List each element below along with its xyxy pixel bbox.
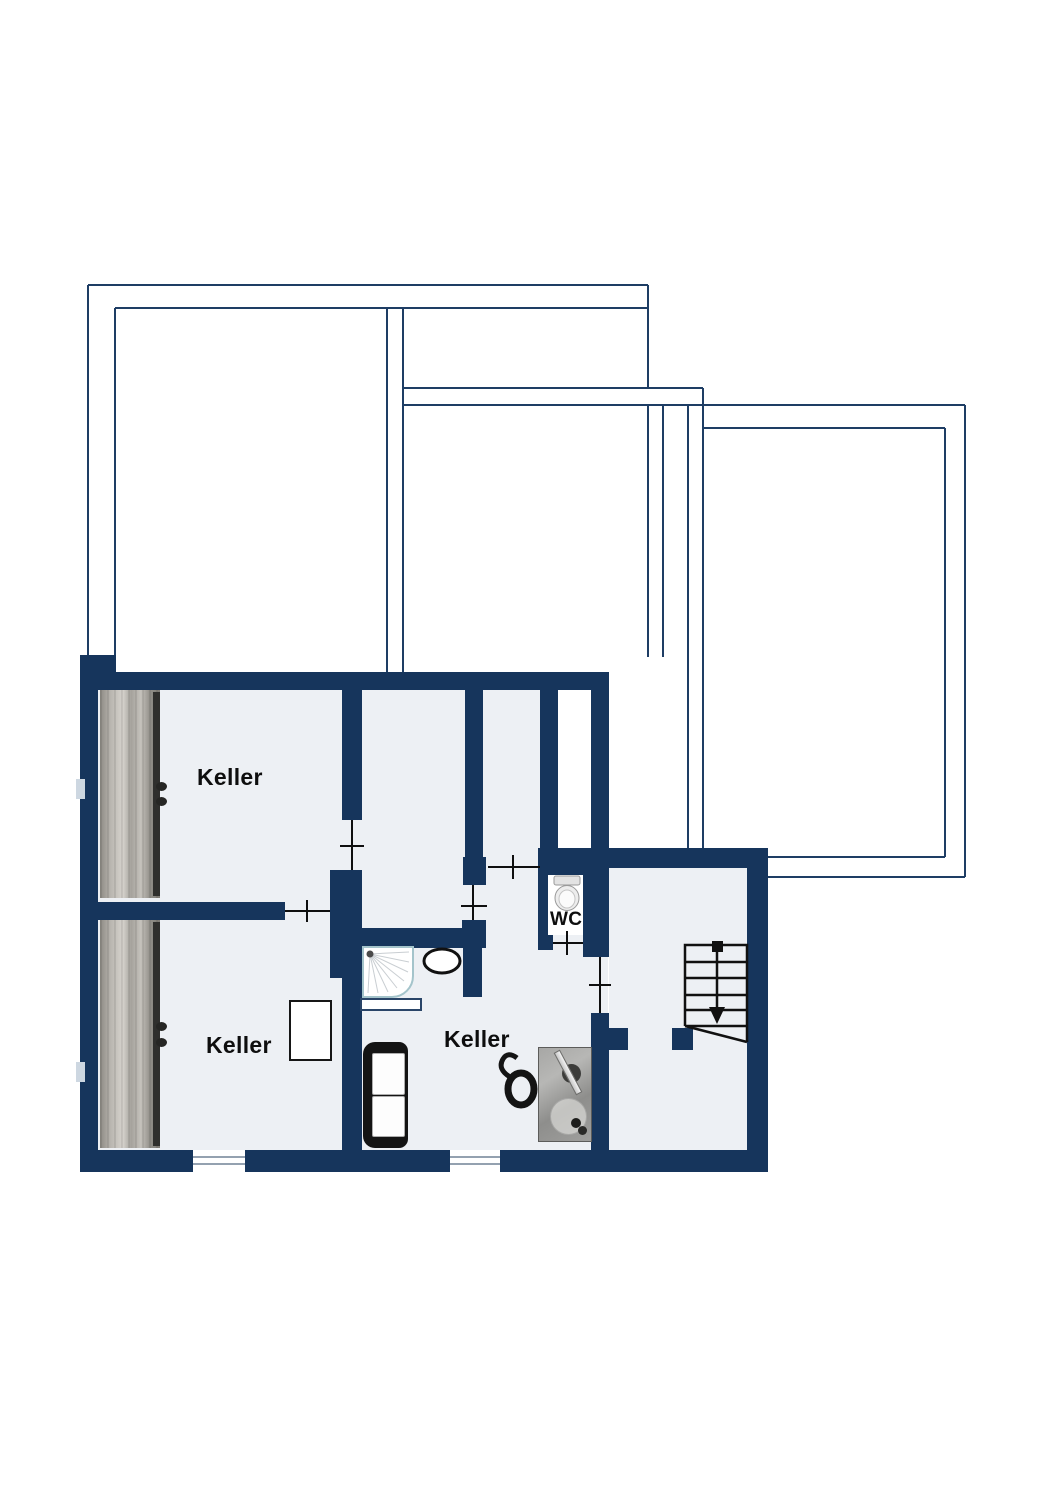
room-label-keller-bottom-left: Keller (206, 1034, 272, 1057)
room-label-wc: WC (550, 910, 582, 929)
symbols-overlay (0, 0, 1060, 1500)
staircase (685, 941, 747, 1042)
stair-down-arrow-icon (709, 1007, 725, 1024)
room-label-keller-middle: Keller (444, 1028, 510, 1051)
office-chair-icon (501, 1055, 534, 1105)
stair-start-marker (712, 941, 723, 952)
washbasin-oval (424, 949, 460, 973)
room-label-keller-top-left: Keller (197, 766, 263, 789)
floorplan-canvas: Keller Keller Keller WC (0, 0, 1060, 1500)
toilet-icon (554, 876, 580, 911)
